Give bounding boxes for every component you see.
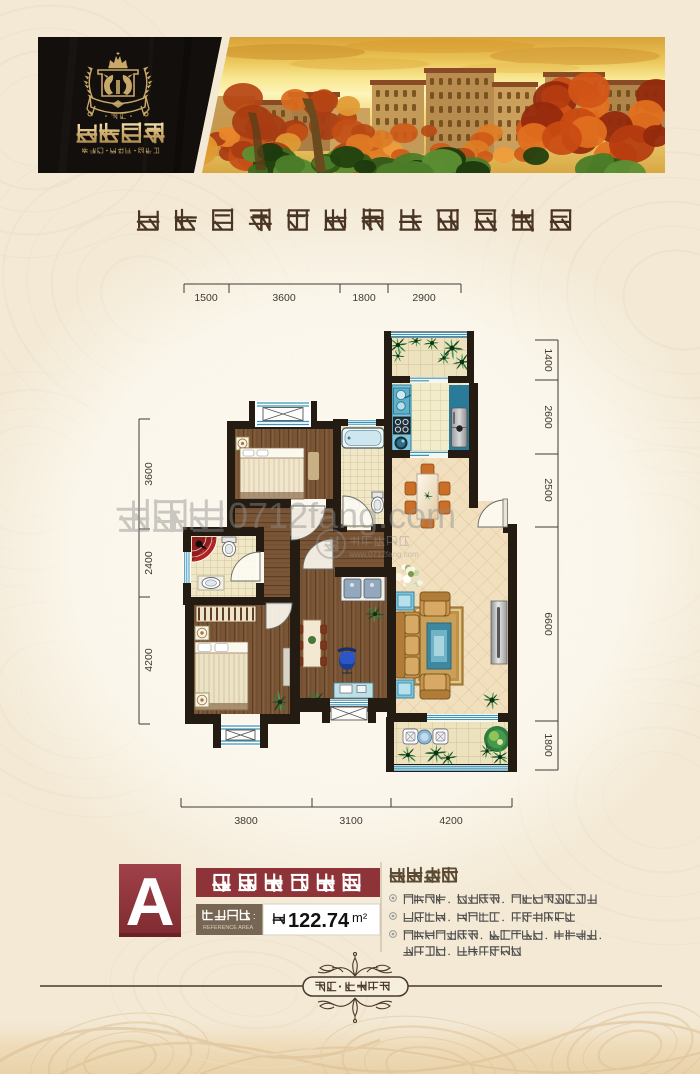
svg-text:A: A [125, 864, 174, 940]
svg-text:1400: 1400 [542, 348, 554, 372]
svg-text:1500: 1500 [194, 292, 218, 304]
svg-text:6600: 6600 [542, 612, 554, 636]
svg-text:4200: 4200 [143, 648, 155, 672]
svg-text:3600: 3600 [143, 462, 155, 486]
svg-text:3800: 3800 [234, 815, 258, 827]
svg-text:2500: 2500 [542, 478, 554, 502]
svg-text:3100: 3100 [339, 815, 363, 827]
svg-text:REFERENCE AREA: REFERENCE AREA [203, 925, 253, 931]
svg-text:2900: 2900 [412, 292, 436, 304]
svg-text:2400: 2400 [143, 551, 155, 575]
svg-text:1800: 1800 [352, 292, 376, 304]
svg-text:4200: 4200 [439, 815, 463, 827]
svg-text:www.0712fang.com: www.0712fang.com [348, 550, 419, 559]
svg-text:1800: 1800 [542, 733, 554, 757]
svg-text:m²: m² [352, 910, 368, 925]
svg-text:2600: 2600 [542, 405, 554, 429]
svg-text::: : [253, 911, 256, 921]
svg-text:3600: 3600 [272, 292, 296, 304]
svg-text:122.74: 122.74 [288, 910, 350, 932]
svg-text:0712fang.com: 0712fang.com [228, 495, 456, 536]
